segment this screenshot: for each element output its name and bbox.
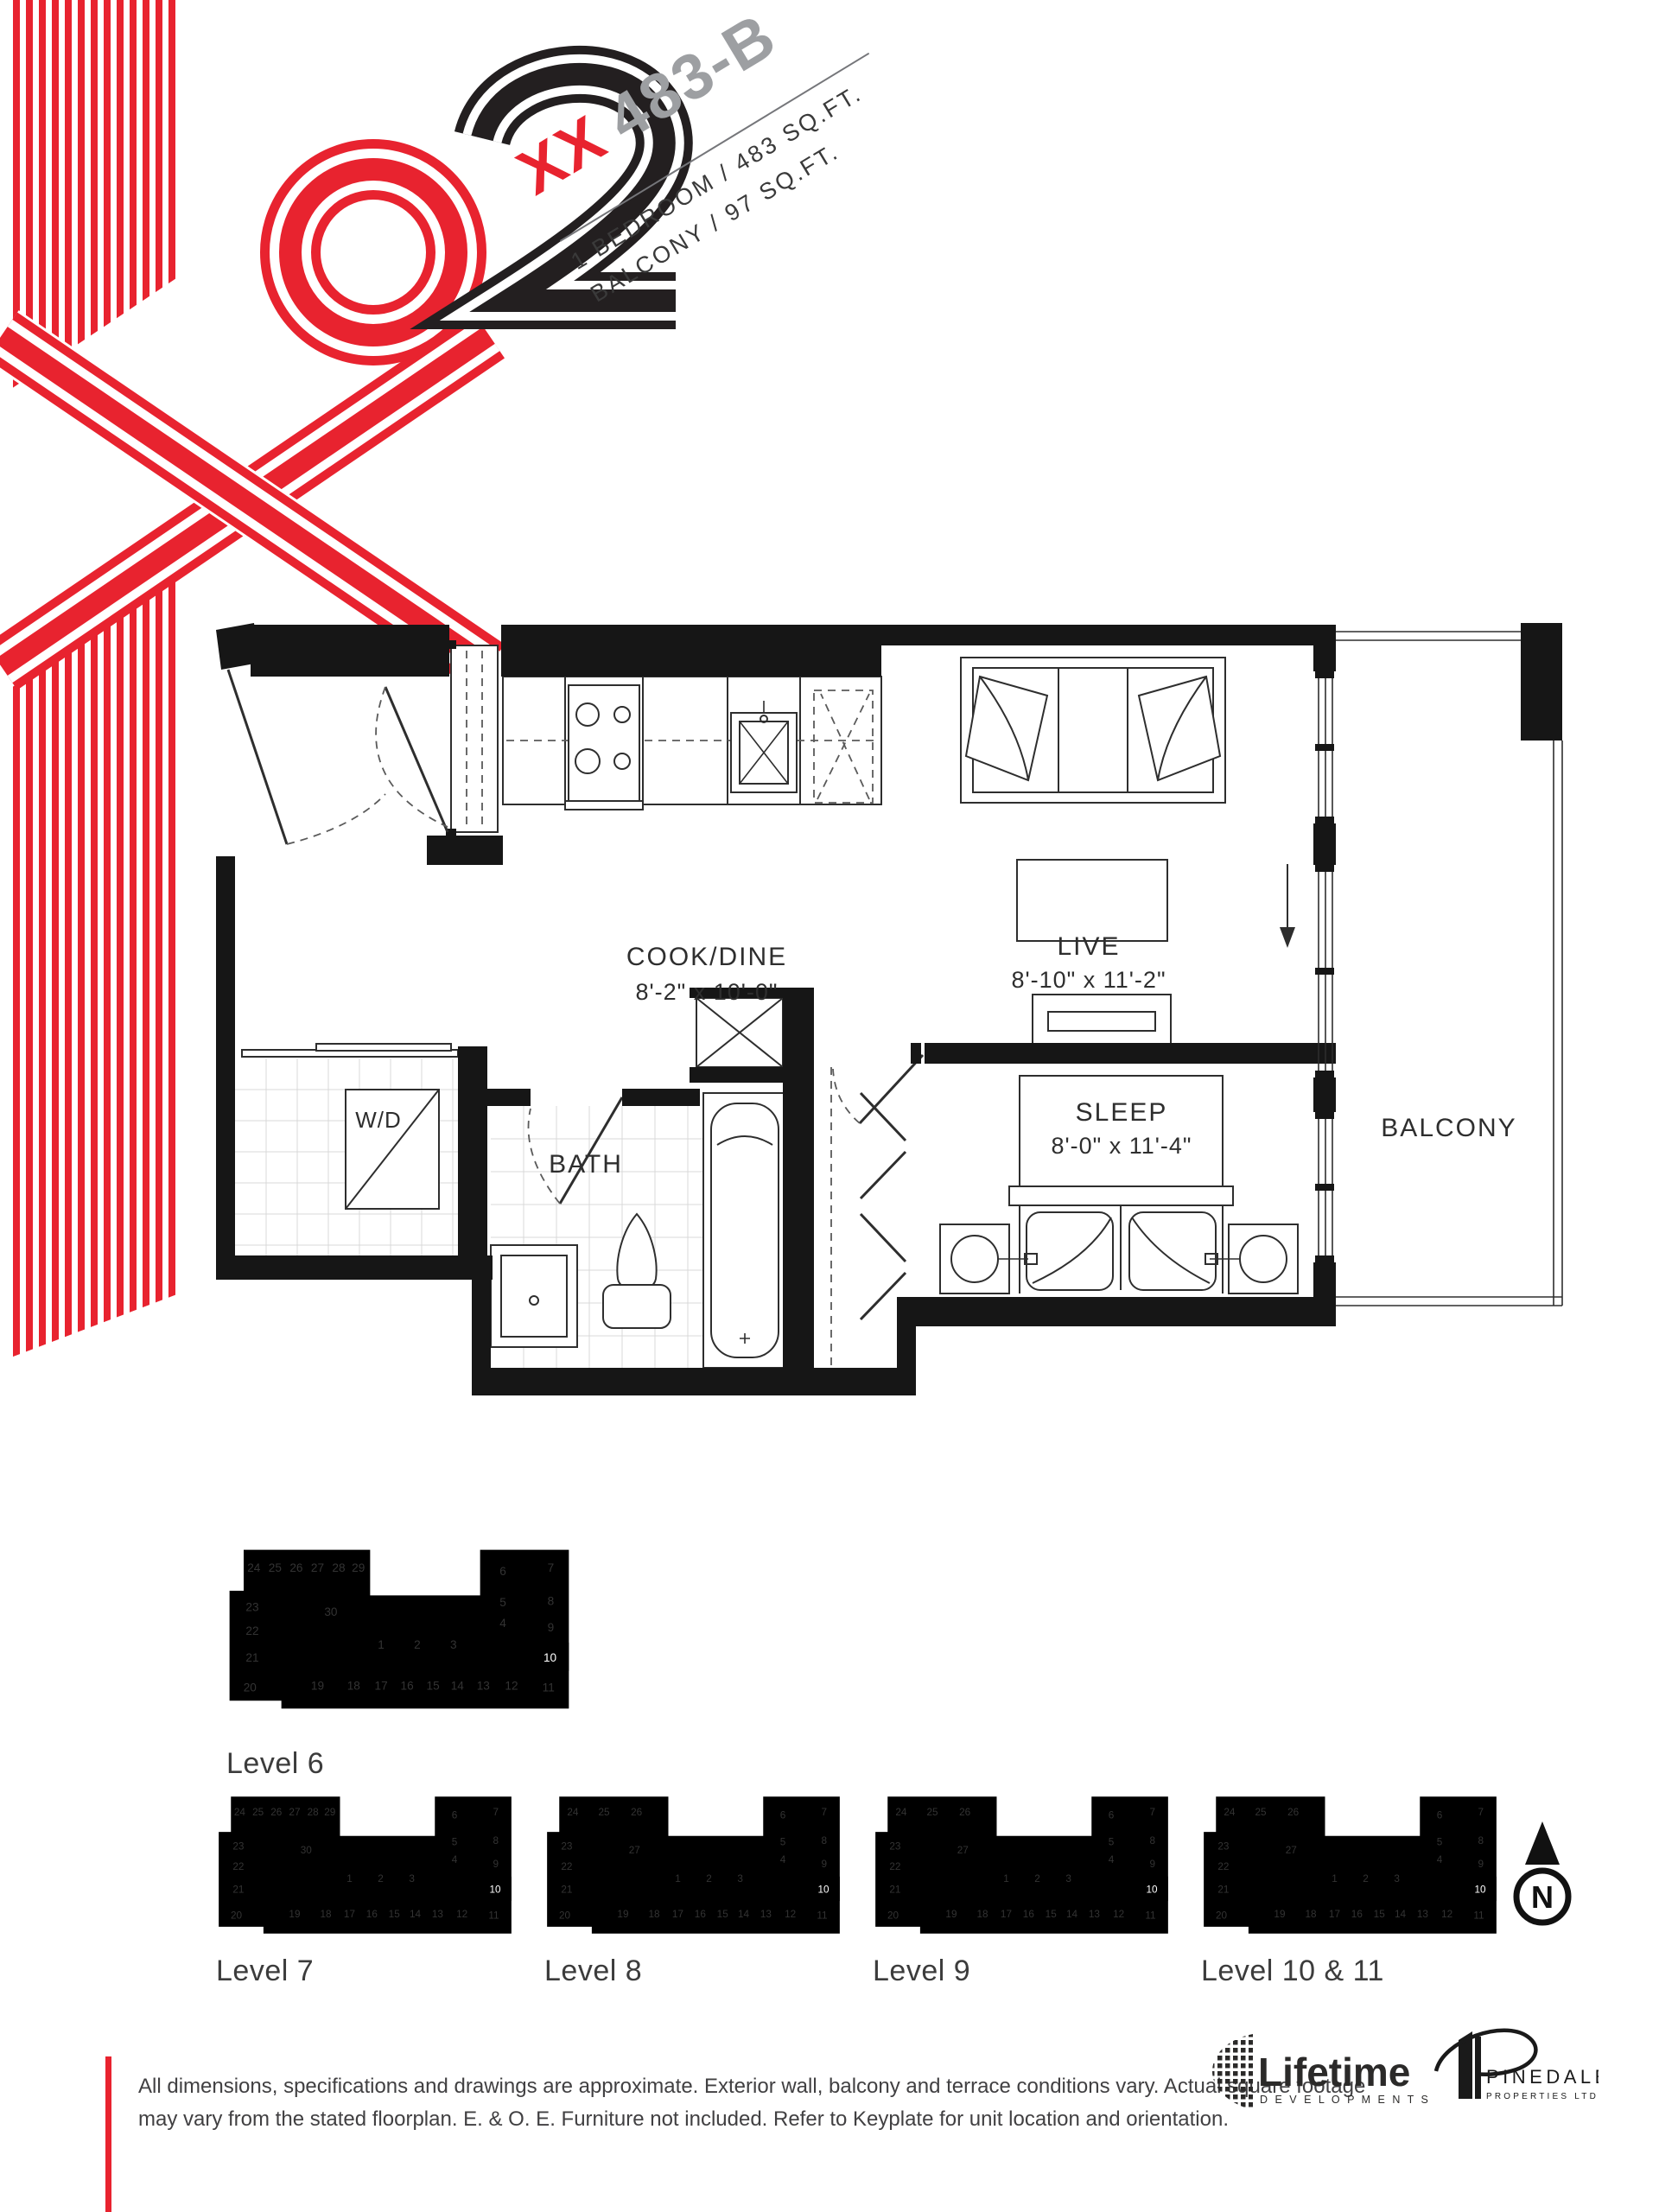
svg-text:27: 27 (1286, 1845, 1297, 1856)
svg-text:13: 13 (477, 1680, 490, 1693)
svg-text:5: 5 (452, 1837, 458, 1848)
bath-label: BATH (549, 1150, 623, 1179)
toilet (603, 1214, 671, 1328)
svg-text:3: 3 (737, 1873, 743, 1885)
svg-text:23: 23 (245, 1601, 258, 1614)
svg-text:15: 15 (717, 1909, 729, 1920)
svg-text:17: 17 (375, 1680, 388, 1693)
svg-text:6: 6 (780, 1809, 786, 1821)
svg-text:14: 14 (1395, 1909, 1407, 1920)
svg-text:20: 20 (887, 1910, 899, 1921)
svg-text:4: 4 (1109, 1854, 1115, 1866)
svg-text:30: 30 (324, 1605, 338, 1618)
svg-text:13: 13 (1417, 1909, 1429, 1920)
svg-text:16: 16 (1023, 1909, 1035, 1920)
svg-text:19: 19 (617, 1909, 628, 1920)
svg-text:17: 17 (672, 1909, 683, 1920)
svg-text:10: 10 (490, 1885, 502, 1896)
keyplate-level-10-11-label: Level 10 & 11 (1201, 1955, 1384, 1988)
svg-text:18: 18 (1305, 1909, 1317, 1920)
svg-text:11: 11 (1473, 1910, 1484, 1921)
svg-text:19: 19 (945, 1909, 957, 1920)
svg-text:26: 26 (959, 1807, 971, 1818)
linen-closet (696, 998, 783, 1067)
svg-text:27: 27 (311, 1561, 324, 1574)
sofa (961, 658, 1225, 803)
svg-text:1: 1 (378, 1638, 385, 1651)
keyplate-level-10-11: 2425262322212027123675849101119181716151… (1201, 1794, 1499, 1936)
nightstand-left (940, 1224, 1037, 1294)
svg-text:25: 25 (269, 1561, 282, 1574)
svg-text:17: 17 (1001, 1909, 1012, 1920)
svg-text:4: 4 (1437, 1854, 1443, 1866)
svg-text:7: 7 (822, 1807, 828, 1818)
svg-text:16: 16 (401, 1680, 414, 1693)
svg-text:2: 2 (1034, 1873, 1040, 1885)
cookdine-dims: 8'-2" x 10'-0" (635, 979, 778, 1005)
pinedale-name: PINEDALE (1486, 2066, 1599, 2088)
lifetime-building-icon (1212, 2034, 1253, 2110)
svg-text:1: 1 (346, 1873, 353, 1885)
svg-text:6: 6 (452, 1809, 458, 1821)
bathroom (491, 998, 786, 1368)
kitchen (503, 677, 881, 810)
svg-text:24: 24 (1224, 1807, 1236, 1818)
svg-text:16: 16 (695, 1909, 707, 1920)
bathtub (703, 1093, 786, 1368)
svg-text:9: 9 (548, 1621, 555, 1634)
disclaimer: All dimensions, specifications and drawi… (138, 2070, 1365, 2136)
keyplate-level-7: 2425262728292322212030123675849101119181… (216, 1794, 514, 1936)
svg-text:5: 5 (780, 1837, 786, 1848)
keyplate-level-6-label: Level 6 (226, 1747, 324, 1781)
svg-text:12: 12 (1441, 1909, 1452, 1920)
svg-text:22: 22 (561, 1861, 572, 1872)
svg-text:10: 10 (1475, 1885, 1487, 1896)
svg-text:28: 28 (332, 1561, 345, 1574)
floorplan-sheet: XX483-B 1 BEDROOM / 483 SQ.FT. BALCONY /… (0, 0, 1659, 2212)
svg-text:21: 21 (245, 1651, 258, 1664)
svg-text:2: 2 (706, 1873, 712, 1885)
pinedale-logo: PINEDALE PROPERTIES LTD (1434, 2026, 1599, 2113)
svg-text:2: 2 (414, 1638, 421, 1651)
entry-door (228, 670, 385, 844)
nightstand-right (1205, 1224, 1298, 1294)
svg-text:8: 8 (822, 1835, 828, 1847)
svg-text:25: 25 (252, 1807, 264, 1818)
svg-text:11: 11 (1145, 1910, 1155, 1921)
north-compass-icon: N (1495, 1815, 1590, 1935)
svg-text:N: N (1531, 1879, 1554, 1915)
bed (1020, 1076, 1223, 1186)
svg-text:9: 9 (822, 1859, 828, 1870)
kitchen-sink (731, 701, 797, 792)
live-label: LIVE (1057, 932, 1120, 961)
svg-text:15: 15 (427, 1680, 440, 1693)
svg-text:20: 20 (1216, 1910, 1228, 1921)
svg-text:3: 3 (1065, 1873, 1071, 1885)
keyplate-level-9: 2425262322212027123675849101119181716151… (873, 1794, 1171, 1936)
svg-text:1: 1 (1003, 1873, 1009, 1885)
keyplate-level-8-label: Level 8 (544, 1955, 642, 1988)
stove (569, 685, 639, 801)
svg-text:26: 26 (289, 1561, 302, 1574)
svg-text:27: 27 (957, 1845, 969, 1856)
disclaimer-line1: All dimensions, specifications and drawi… (138, 2070, 1365, 2103)
tv-console (1033, 995, 1171, 1045)
svg-text:9: 9 (493, 1859, 499, 1870)
svg-text:6: 6 (1437, 1809, 1443, 1821)
svg-text:5: 5 (499, 1596, 506, 1609)
coffee-table (1017, 860, 1167, 941)
svg-text:25: 25 (598, 1807, 610, 1818)
svg-text:21: 21 (889, 1885, 900, 1896)
svg-text:22: 22 (245, 1624, 258, 1637)
lifetime-name: Lifetime (1258, 2050, 1410, 2094)
svg-text:12: 12 (505, 1680, 518, 1693)
svg-text:15: 15 (389, 1909, 401, 1920)
svg-text:29: 29 (324, 1807, 335, 1818)
svg-text:14: 14 (738, 1909, 750, 1920)
svg-text:20: 20 (559, 1910, 571, 1921)
svg-text:16: 16 (1351, 1909, 1363, 1920)
svg-text:18: 18 (347, 1680, 360, 1693)
svg-text:24: 24 (895, 1807, 907, 1818)
laundry-room: W/D (242, 1044, 458, 1209)
svg-text:5: 5 (1109, 1837, 1115, 1848)
svg-text:18: 18 (320, 1909, 332, 1920)
svg-text:9: 9 (1150, 1859, 1156, 1870)
svg-text:23: 23 (1217, 1840, 1230, 1852)
svg-text:4: 4 (499, 1617, 506, 1630)
svg-text:8: 8 (1478, 1835, 1484, 1847)
svg-text:11: 11 (488, 1910, 499, 1921)
fridge (814, 690, 873, 803)
logo-stripe-band (9, 0, 181, 1358)
svg-text:13: 13 (1089, 1909, 1101, 1920)
svg-text:10: 10 (543, 1651, 557, 1664)
svg-text:15: 15 (1374, 1909, 1386, 1920)
svg-text:9: 9 (1478, 1859, 1484, 1870)
svg-text:22: 22 (232, 1861, 244, 1872)
pinedale-sub: PROPERTIES LTD (1486, 2092, 1599, 2101)
svg-text:6: 6 (1109, 1809, 1115, 1821)
svg-text:4: 4 (780, 1854, 786, 1866)
svg-text:10: 10 (818, 1885, 830, 1896)
svg-text:22: 22 (889, 1861, 900, 1872)
svg-text:7: 7 (1478, 1807, 1484, 1818)
disclaimer-line2: may vary from the stated floorplan. E. &… (138, 2103, 1365, 2136)
svg-text:3: 3 (450, 1638, 457, 1651)
sleep-label: SLEEP (1076, 1098, 1168, 1127)
walls (216, 623, 1562, 1395)
svg-text:26: 26 (1287, 1807, 1300, 1818)
svg-text:14: 14 (1066, 1909, 1078, 1920)
keyplate-level-8: 2425262322212027123675849101119181716151… (544, 1794, 842, 1936)
svg-text:2: 2 (1363, 1873, 1369, 1885)
svg-text:26: 26 (631, 1807, 643, 1818)
windows (1315, 671, 1334, 1262)
svg-text:3: 3 (1394, 1873, 1400, 1885)
svg-text:23: 23 (889, 1840, 901, 1852)
wd-label: W/D (355, 1107, 402, 1133)
svg-text:3: 3 (409, 1873, 415, 1885)
svg-text:30: 30 (301, 1845, 313, 1856)
svg-text:17: 17 (1329, 1909, 1340, 1920)
svg-text:11: 11 (817, 1910, 827, 1921)
svg-text:16: 16 (366, 1909, 378, 1920)
svg-text:24: 24 (247, 1561, 261, 1574)
keyplate-level-7-label: Level 7 (216, 1955, 314, 1988)
keyplate-level-6: 2425262728292322212030123675849101119181… (226, 1547, 572, 1712)
svg-text:17: 17 (344, 1909, 355, 1920)
svg-text:12: 12 (785, 1909, 796, 1920)
svg-text:23: 23 (232, 1840, 245, 1852)
cookdine-label: COOK/DINE (626, 943, 787, 971)
svg-text:2: 2 (378, 1873, 384, 1885)
svg-text:7: 7 (493, 1807, 499, 1818)
sleep-dims: 8'-0" x 11'-4" (1051, 1133, 1192, 1159)
balcony-access-arrow (1280, 864, 1295, 948)
svg-text:24: 24 (567, 1807, 579, 1818)
svg-text:11: 11 (543, 1681, 555, 1694)
svg-text:19: 19 (311, 1680, 324, 1693)
pinedale-tower-icon (1436, 2031, 1535, 2099)
svg-text:20: 20 (231, 1910, 243, 1921)
lifetime-logo: Lifetime D E V E L O P M E N T S (1210, 2032, 1434, 2114)
svg-text:8: 8 (493, 1835, 499, 1847)
svg-text:1: 1 (675, 1873, 681, 1885)
svg-text:24: 24 (234, 1807, 246, 1818)
svg-text:18: 18 (976, 1909, 988, 1920)
svg-text:4: 4 (452, 1854, 458, 1866)
svg-text:29: 29 (352, 1561, 365, 1574)
svg-text:21: 21 (232, 1885, 244, 1896)
svg-text:14: 14 (451, 1680, 465, 1693)
svg-text:28: 28 (308, 1807, 320, 1818)
svg-text:27: 27 (629, 1845, 640, 1856)
svg-text:25: 25 (1255, 1807, 1267, 1818)
bath-vanity (491, 1245, 577, 1347)
svg-text:12: 12 (1113, 1909, 1124, 1920)
svg-text:1: 1 (1332, 1873, 1338, 1885)
svg-text:22: 22 (1217, 1861, 1229, 1872)
svg-text:21: 21 (1217, 1885, 1229, 1896)
live-dims: 8'-10" x 11'-2" (1011, 967, 1166, 993)
svg-text:19: 19 (1274, 1909, 1285, 1920)
logo-letter-o (290, 169, 456, 335)
svg-text:13: 13 (760, 1909, 772, 1920)
svg-text:13: 13 (432, 1909, 444, 1920)
balcony-label: BALCONY (1381, 1114, 1516, 1142)
svg-text:8: 8 (548, 1594, 555, 1607)
svg-text:18: 18 (648, 1909, 660, 1920)
svg-text:6: 6 (499, 1565, 506, 1578)
svg-text:10: 10 (1147, 1885, 1159, 1896)
svg-text:25: 25 (926, 1807, 938, 1818)
keyplate-level-9-label: Level 9 (873, 1955, 970, 1988)
svg-text:12: 12 (456, 1909, 467, 1920)
lifetime-sub: D E V E L O P M E N T S (1260, 2094, 1430, 2106)
main-floorplan: W/D (216, 609, 1573, 1400)
svg-text:5: 5 (1437, 1837, 1443, 1848)
svg-text:21: 21 (561, 1885, 572, 1896)
svg-text:19: 19 (289, 1909, 300, 1920)
svg-text:15: 15 (1046, 1909, 1058, 1920)
svg-text:27: 27 (289, 1807, 300, 1818)
svg-text:14: 14 (410, 1909, 422, 1920)
svg-text:20: 20 (244, 1681, 257, 1694)
svg-text:23: 23 (561, 1840, 573, 1852)
svg-text:8: 8 (1150, 1835, 1156, 1847)
svg-text:26: 26 (270, 1807, 283, 1818)
footer-red-accent (105, 2056, 111, 2212)
svg-text:7: 7 (1150, 1807, 1156, 1818)
svg-text:7: 7 (548, 1561, 555, 1574)
